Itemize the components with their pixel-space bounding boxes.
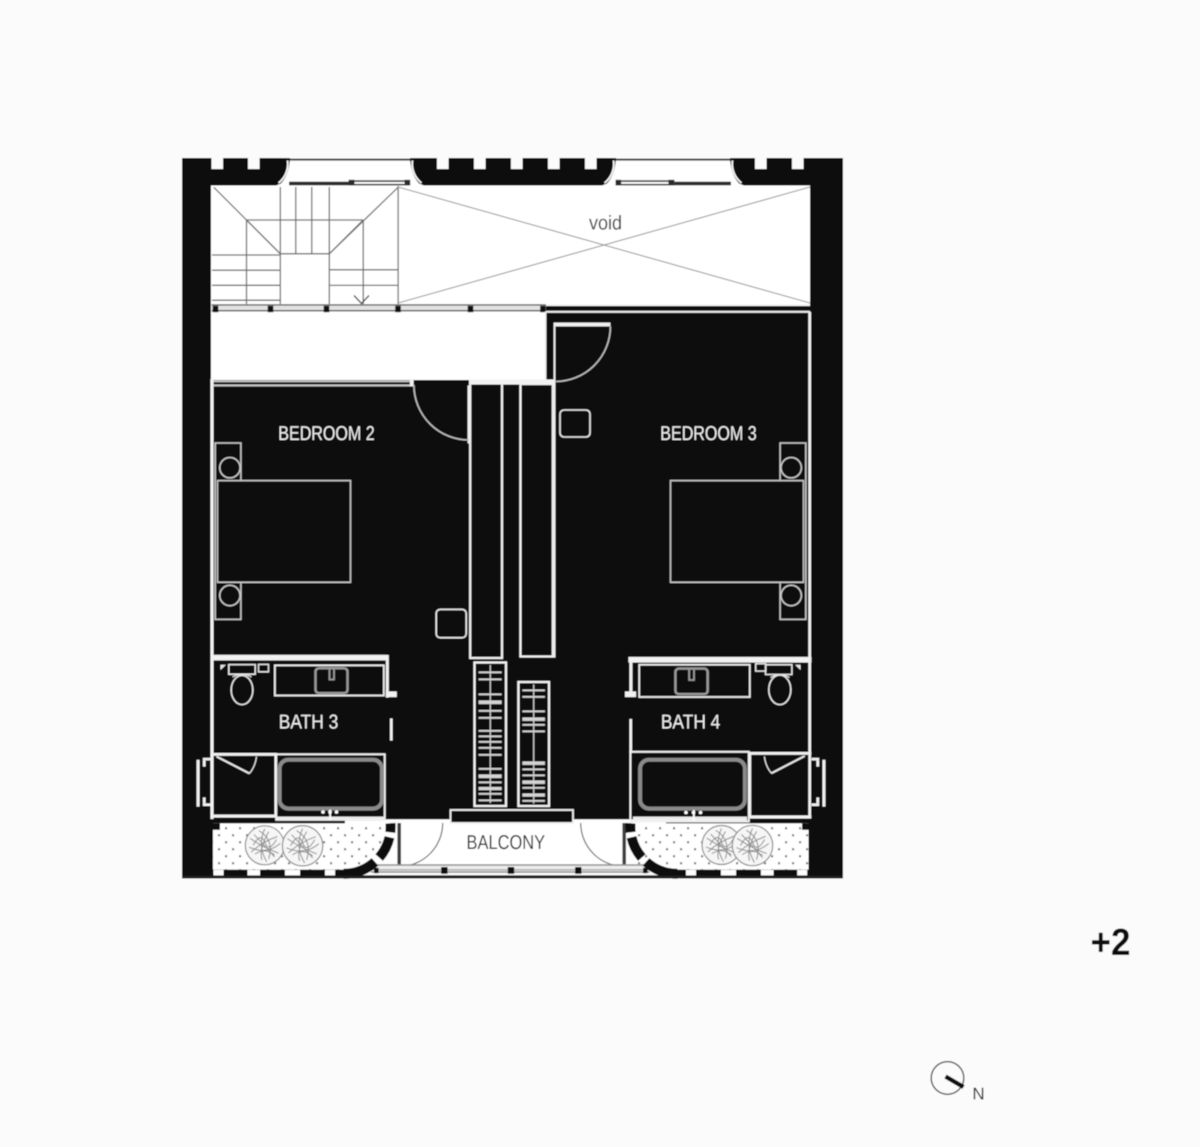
svg-text:BEDROOM 3: BEDROOM 3: [660, 423, 757, 445]
svg-text:+2: +2: [1091, 922, 1131, 964]
svg-text:BATH 4: BATH 4: [661, 712, 721, 734]
svg-text:N: N: [972, 1085, 984, 1104]
svg-text:BATH 3: BATH 3: [279, 712, 339, 734]
svg-text:BALCONY: BALCONY: [467, 832, 546, 854]
svg-text:BEDROOM 2: BEDROOM 2: [278, 423, 375, 445]
svg-text:void: void: [589, 213, 622, 235]
